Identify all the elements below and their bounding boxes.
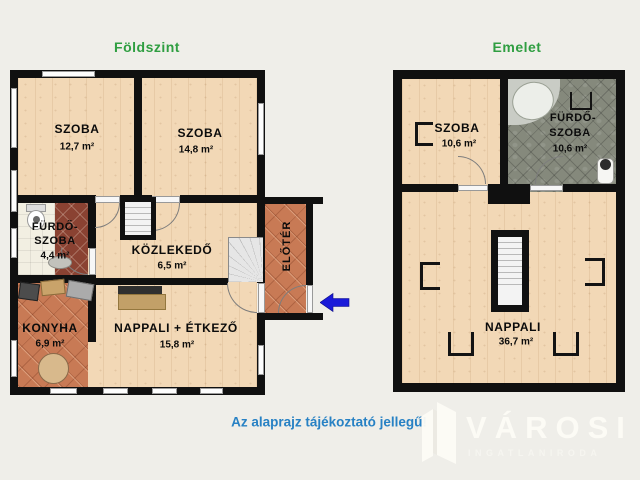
wall bbox=[488, 184, 530, 204]
room-label-szoba2: SZOBA bbox=[178, 126, 223, 140]
watermark-brand: VÁROSI bbox=[466, 410, 633, 446]
door bbox=[530, 185, 563, 191]
window bbox=[258, 103, 264, 155]
staircase bbox=[120, 197, 156, 240]
room-label-szoba: SZOBA bbox=[435, 121, 480, 135]
stove-icon bbox=[18, 282, 40, 302]
room-area-kozlekedo: 6,5 m² bbox=[158, 261, 187, 272]
door bbox=[89, 248, 96, 275]
shower-icon bbox=[570, 92, 592, 110]
wall bbox=[10, 387, 265, 395]
wall bbox=[96, 278, 228, 285]
room-area-konyha: 6,9 m² bbox=[36, 339, 65, 350]
staircase bbox=[491, 230, 529, 312]
wall bbox=[10, 195, 95, 203]
wall bbox=[393, 70, 402, 392]
wall bbox=[393, 383, 625, 392]
wall bbox=[257, 313, 323, 320]
sideboard bbox=[118, 286, 162, 294]
room-label-eloter: ELŐTÉR bbox=[281, 221, 293, 272]
window bbox=[152, 388, 177, 394]
room-label-nappali: NAPPALI + ÉTKEZŐ bbox=[114, 321, 238, 335]
wall bbox=[257, 197, 323, 204]
room-label-szoba1: SZOBA bbox=[55, 122, 100, 136]
window bbox=[11, 88, 17, 148]
winder-stairs bbox=[228, 237, 263, 282]
furniture-bracket bbox=[420, 262, 440, 290]
kitchen-counter bbox=[40, 279, 65, 296]
ground-floor-title: Földszint bbox=[114, 39, 180, 55]
disclaimer-text: Az alaprajz tájékoztató jellegű! bbox=[231, 415, 427, 430]
room-area-furdoszoba: 10,6 m² bbox=[553, 144, 587, 155]
door bbox=[95, 196, 120, 203]
varosi-logo-icon bbox=[420, 400, 462, 466]
entrance-door bbox=[307, 285, 313, 313]
wall bbox=[393, 70, 625, 79]
kitchen-table bbox=[38, 353, 69, 384]
room-area-szoba2: 14,8 m² bbox=[179, 145, 213, 156]
furniture-bracket bbox=[553, 332, 579, 356]
upper-floor-title: Emelet bbox=[493, 39, 542, 55]
wall bbox=[306, 197, 313, 285]
window bbox=[103, 388, 128, 394]
window bbox=[11, 340, 17, 377]
window bbox=[42, 71, 95, 77]
room-label-konyha: KONYHA bbox=[22, 321, 78, 335]
room-label-kozlekedo: KÖZLEKEDŐ bbox=[132, 243, 213, 257]
toilet-icon bbox=[600, 159, 611, 170]
room-label-furdoszoba-line1: FÜRDŐ- bbox=[32, 221, 78, 233]
door bbox=[152, 196, 180, 203]
watermark-tagline: INGATLANIRODA bbox=[468, 448, 601, 458]
wall bbox=[393, 184, 458, 192]
wall bbox=[180, 195, 265, 203]
room-area-szoba1: 12,7 m² bbox=[60, 142, 94, 153]
wall bbox=[134, 70, 142, 203]
window bbox=[200, 388, 223, 394]
wall bbox=[500, 70, 508, 192]
wall bbox=[563, 184, 625, 192]
room-label-furdoszoba-line1: FÜRDŐ- bbox=[550, 112, 596, 124]
window bbox=[50, 388, 77, 394]
furniture-bracket bbox=[415, 122, 433, 146]
furniture-bracket bbox=[448, 332, 474, 356]
ground-floor-plan: SZOBA 12,7 m² SZOBA 14,8 m² FÜRDŐ- SZOBA… bbox=[10, 70, 313, 395]
door bbox=[458, 185, 488, 191]
room-label-furdoszoba-line2: SZOBA bbox=[34, 235, 76, 247]
rug bbox=[118, 294, 166, 310]
upper-floor-plan: SZOBA 10,6 m² FÜRDŐ- SZOBA 10,6 m² NAPPA… bbox=[393, 70, 625, 392]
room-area-nappali: 15,8 m² bbox=[160, 340, 194, 351]
room-area-furdoszoba: 4,4 m² bbox=[41, 251, 70, 262]
window bbox=[11, 170, 17, 212]
room-area-nappali: 36,7 m² bbox=[499, 337, 533, 348]
furniture-bracket bbox=[585, 258, 605, 286]
window bbox=[258, 345, 264, 375]
room-label-furdoszoba-line2: SZOBA bbox=[549, 127, 591, 139]
window bbox=[11, 228, 17, 258]
room-area-szoba: 10,6 m² bbox=[442, 139, 476, 150]
entrance-arrow-icon bbox=[320, 292, 350, 313]
room-label-nappali: NAPPALI bbox=[485, 320, 541, 334]
wall bbox=[616, 70, 625, 392]
floorplan-image: Földszint Emelet bbox=[0, 0, 640, 480]
door bbox=[258, 283, 265, 313]
